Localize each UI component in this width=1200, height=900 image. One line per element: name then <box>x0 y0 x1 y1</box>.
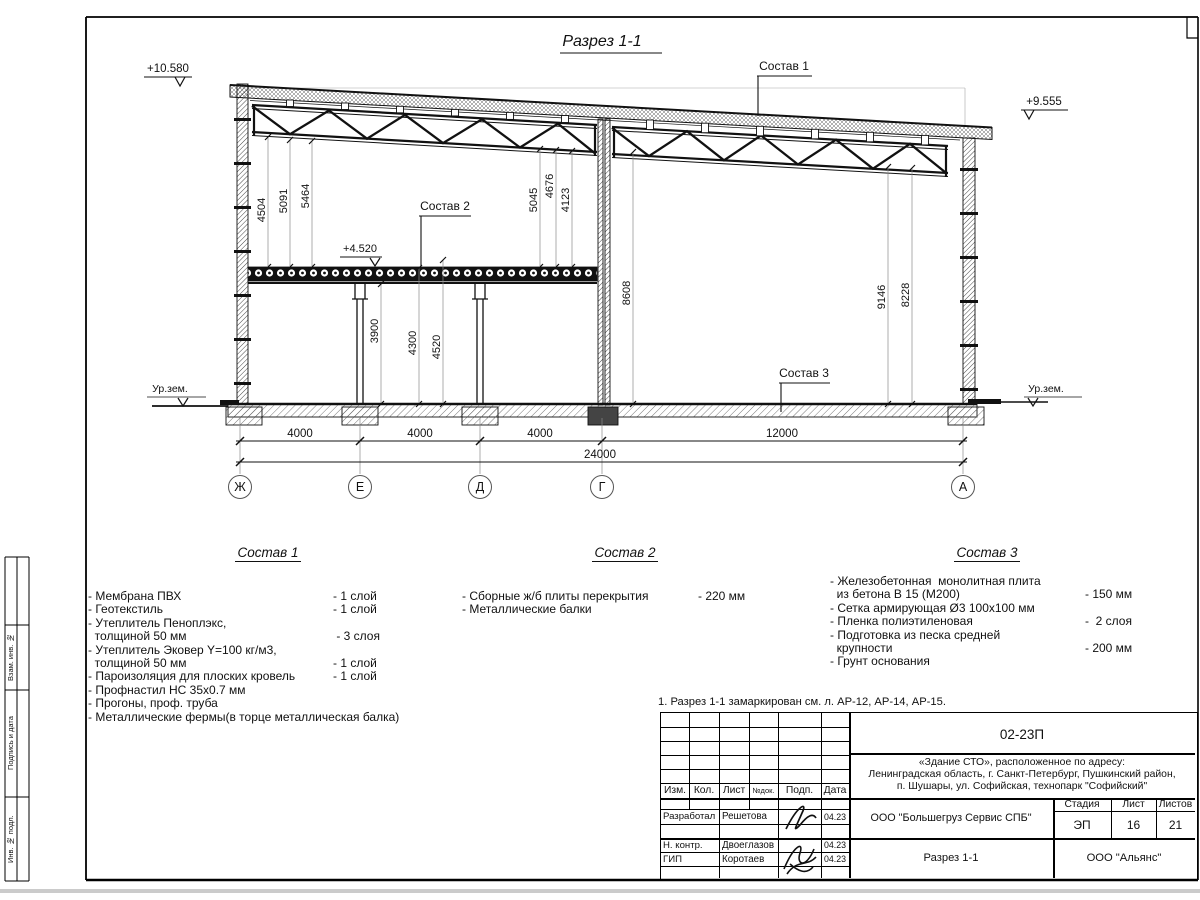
sheet-label: Лист <box>1111 798 1156 811</box>
side-label-podpis: Подпись и дата <box>4 690 17 797</box>
composition-1-title: Состав 1 <box>88 545 448 560</box>
role-ncontrol: Н. контр. <box>663 838 719 852</box>
ground-level-right: Ур.зем. <box>1028 383 1064 395</box>
composition-3-title: Состав 3 <box>830 545 1144 560</box>
composition-1: Состав 1 - Мембрана ПВХ- 1 слой - Геотек… <box>88 545 448 724</box>
composition-3: Состав 3 - Железобетонная монолитная пли… <box>830 545 1144 669</box>
signature-gip <box>778 837 821 878</box>
dim-3900: 3900 <box>369 319 381 343</box>
list-item: толщиной 50 мм - 3 слоя <box>88 630 448 643</box>
sheet-number: 16 <box>1111 811 1156 838</box>
list-item: - Сборные ж/б плиты перекрытия- 220 мм <box>462 590 788 603</box>
roof-deck <box>230 85 992 140</box>
col-podp: Подп. <box>778 783 821 798</box>
list-item: - Утеплитель Эковер Y=100 кг/м3, <box>88 644 448 657</box>
list-item: - Сетка армирующая Ø3 100х100 мм <box>830 602 1144 615</box>
name-gip: Коротаев <box>722 852 777 866</box>
title-block: Изм. Кол. Лист №док. Подп. Дата Разработ… <box>660 712 1198 880</box>
role-gip: ГИП <box>663 852 719 866</box>
list-item: - Пленка полиэтиленовая- 2 слоя <box>830 615 1144 628</box>
dim-4520: 4520 <box>431 335 443 359</box>
leader-sostav3: Состав 3 <box>779 366 829 380</box>
col-list: Лист <box>719 783 749 798</box>
axis-d: Д <box>476 480 485 494</box>
list-item: - Железобетонная монолитная плита <box>830 575 1144 588</box>
date-gip: 04.23 <box>821 852 849 866</box>
role-developer: Разработал <box>663 809 719 824</box>
leader-sostav2: Состав 2 <box>420 199 470 213</box>
sheet-edge-shadow <box>0 889 1200 893</box>
dim-4504: 4504 <box>256 198 268 222</box>
ground-level-left: Ур.зем. <box>152 383 188 395</box>
dim-4300: 4300 <box>407 331 419 355</box>
list-item: - Металлические фермы(в торце металличес… <box>88 711 448 724</box>
elevation-mark-icon <box>175 77 185 86</box>
sheets-total: 21 <box>1156 811 1195 838</box>
name-ncontrol: Двоеглазов <box>722 838 777 852</box>
company-name: ООО "Альянс" <box>1053 838 1195 878</box>
dim-span1: 4000 <box>287 428 313 440</box>
wall-mid-b <box>605 119 610 405</box>
list-item: толщиной 50 мм- 1 слой <box>88 657 448 670</box>
sheets-label: Листов <box>1156 798 1195 811</box>
col-ndok: №док. <box>749 783 778 798</box>
dim-span3: 4000 <box>527 428 553 440</box>
list-item: - Утеплитель Пеноплэкс, <box>88 617 448 630</box>
sheet-note: 1. Разрез 1-1 замаркирован см. л. АР-12,… <box>658 696 946 708</box>
drawing-sheet: 4504 5091 5464 5045 4676 4123 8608 9146 … <box>0 0 1200 900</box>
stage-value: ЭП <box>1053 811 1111 838</box>
composition-2: Состав 2 - Сборные ж/б плиты перекрытия-… <box>462 545 788 617</box>
list-item: из бетона В 15 (М200)- 150 мм <box>830 588 1144 601</box>
mezzanine-slab <box>248 267 597 281</box>
org-name: ООО "Большегруз Сервис СПБ" <box>849 798 1053 838</box>
dim-8608: 8608 <box>621 281 633 305</box>
list-item: - Прогоны, проф. труба <box>88 697 448 710</box>
list-item: - Грунт основания <box>830 655 1144 668</box>
elevation-mark-icon <box>1024 110 1034 119</box>
col-kol: Кол. <box>689 783 719 798</box>
date-ncontrol: 04.23 <box>821 838 849 852</box>
col-data: Дата <box>821 783 849 798</box>
axis-e: Е <box>356 480 364 494</box>
dim-9146: 9146 <box>876 285 888 309</box>
elevation-mark-icon <box>370 258 380 266</box>
dim-5091: 5091 <box>278 189 290 213</box>
dim-total: 24000 <box>584 449 616 461</box>
list-item: - Геотекстиль- 1 слой <box>88 603 448 616</box>
list-item: - Пароизоляция для плоских кровель- 1 сл… <box>88 670 448 683</box>
dim-5045: 5045 <box>528 188 540 212</box>
list-item: - Подготовка из песка средней <box>830 629 1144 642</box>
corner-box <box>1187 17 1198 38</box>
composition-2-title: Состав 2 <box>462 545 788 560</box>
axis-g: Г <box>599 480 606 494</box>
col-izm: Изм. <box>661 783 689 798</box>
elevation-top-right: +9.555 <box>1026 96 1062 108</box>
axis-zh: Ж <box>234 480 246 494</box>
list-item: - Мембрана ПВХ- 1 слой <box>88 590 448 603</box>
doc-title: Разрез 1-1 <box>849 838 1053 878</box>
name-developer: Решетова <box>722 809 777 824</box>
stage-label: Стадия <box>1053 798 1111 811</box>
list-item: - Металлические балки <box>462 603 788 616</box>
side-label-inv: Инв. № подл. <box>4 797 17 881</box>
section-view <box>152 84 1048 425</box>
leader-sostav1: Состав 1 <box>759 59 809 73</box>
elevation-slab: +4.520 <box>343 243 377 255</box>
wall-mid-a <box>598 119 603 405</box>
elevation-top-left: +10.580 <box>147 63 189 75</box>
elevation-mark-icon <box>178 398 188 406</box>
wall-left <box>237 84 248 404</box>
dim-4123: 4123 <box>560 188 572 212</box>
date-developer: 04.23 <box>821 809 849 824</box>
signature-developer <box>778 799 821 837</box>
side-label-vzam: Взам. инв. № <box>4 625 17 690</box>
wall-right <box>963 138 975 404</box>
dim-span2: 4000 <box>407 428 433 440</box>
list-item: - Профнастил НС 35х0.7 мм <box>88 684 448 697</box>
axis-bubbles: Ж Е Д Г А <box>229 476 975 499</box>
project-code: 02-23П <box>849 719 1195 749</box>
dim-span4: 12000 <box>766 428 798 440</box>
dim-5464: 5464 <box>300 184 312 208</box>
dim-8228: 8228 <box>900 283 912 307</box>
project-object: «Здание СТО», расположенное по адресу: Л… <box>851 757 1193 793</box>
list-item: крупности- 200 мм <box>830 642 1144 655</box>
axis-a: А <box>959 480 968 494</box>
view-title: Разрез 1-1 <box>562 33 641 50</box>
dim-4676: 4676 <box>544 174 556 198</box>
